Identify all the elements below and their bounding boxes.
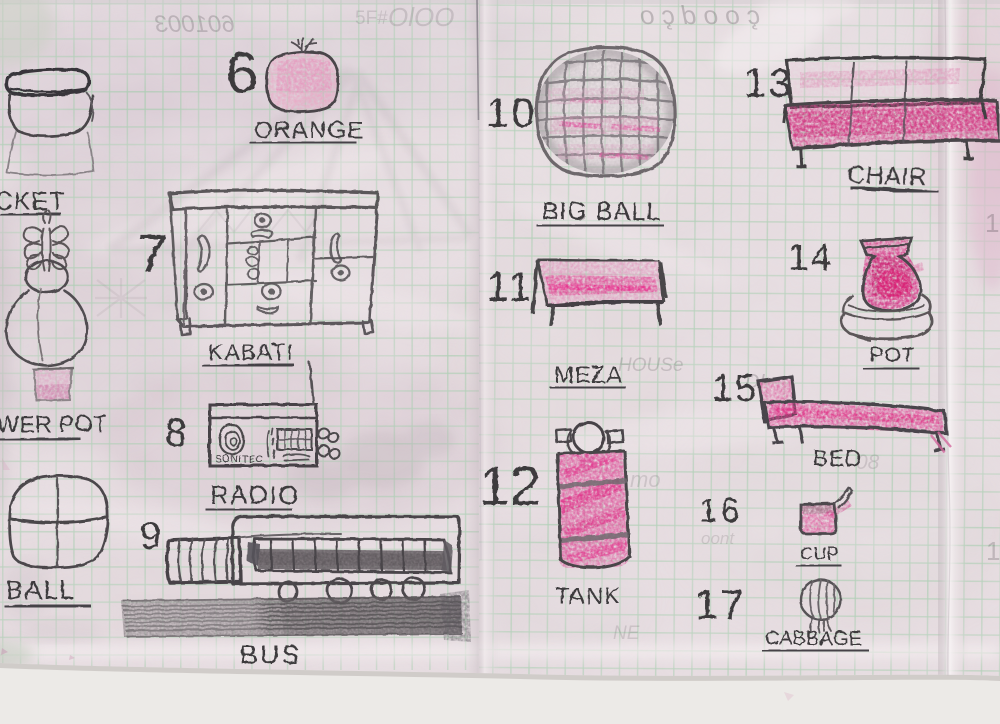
svg-text:ORANGE: ORANGE [253, 116, 363, 143]
svg-text:6: 6 [225, 40, 257, 105]
svg-text:7: 7 [136, 221, 167, 284]
svg-text:WER POT: WER POT [0, 410, 107, 436]
svg-text:MEZA: MEZA [553, 361, 622, 388]
svg-text:14: 14 [787, 236, 832, 277]
svg-text:CUP: CUP [799, 543, 839, 563]
svg-text:10: 10 [985, 208, 1000, 238]
svg-text:11: 11 [485, 262, 533, 309]
svg-text:601003: 601003 [154, 11, 235, 38]
svg-text:HOUSe: HOUSe [618, 355, 683, 376]
svg-text:oont: oont [701, 529, 735, 548]
svg-text:5F#: 5F# [355, 8, 388, 29]
svg-text:RADIO: RADIO [209, 479, 299, 509]
svg-text:17: 17 [694, 580, 745, 627]
svg-text:8: 8 [164, 410, 186, 454]
svg-text:16: 16 [698, 491, 742, 529]
svg-text:BUS: BUS [239, 639, 301, 669]
svg-text:TANK: TANK [554, 582, 620, 609]
svg-text:OlOO: OlOO [388, 2, 454, 32]
svg-text:NE: NE [613, 623, 640, 644]
svg-text:POT: POT [869, 343, 914, 366]
svg-text:SONITEC: SONITEC [215, 454, 263, 465]
svg-text:mo: mo [630, 467, 661, 492]
svg-text:12: 12 [478, 453, 540, 516]
svg-text:1: 1 [986, 536, 1000, 566]
svg-text:15: 15 [711, 367, 757, 409]
svg-text:CABBAGE: CABBAGE [764, 627, 861, 649]
svg-text:BALL: BALL [5, 574, 75, 604]
svg-text:BIG BALL: BIG BALL [541, 197, 660, 225]
svg-text:ç o o d ç o: ç o o d ç o [640, 0, 760, 30]
svg-text:ICKET: ICKET [0, 187, 65, 215]
svg-text:10: 10 [485, 88, 536, 135]
svg-text:KABATI: KABATI [207, 338, 293, 364]
svg-text:9: 9 [139, 514, 161, 557]
svg-text:BED: BED [812, 444, 861, 470]
